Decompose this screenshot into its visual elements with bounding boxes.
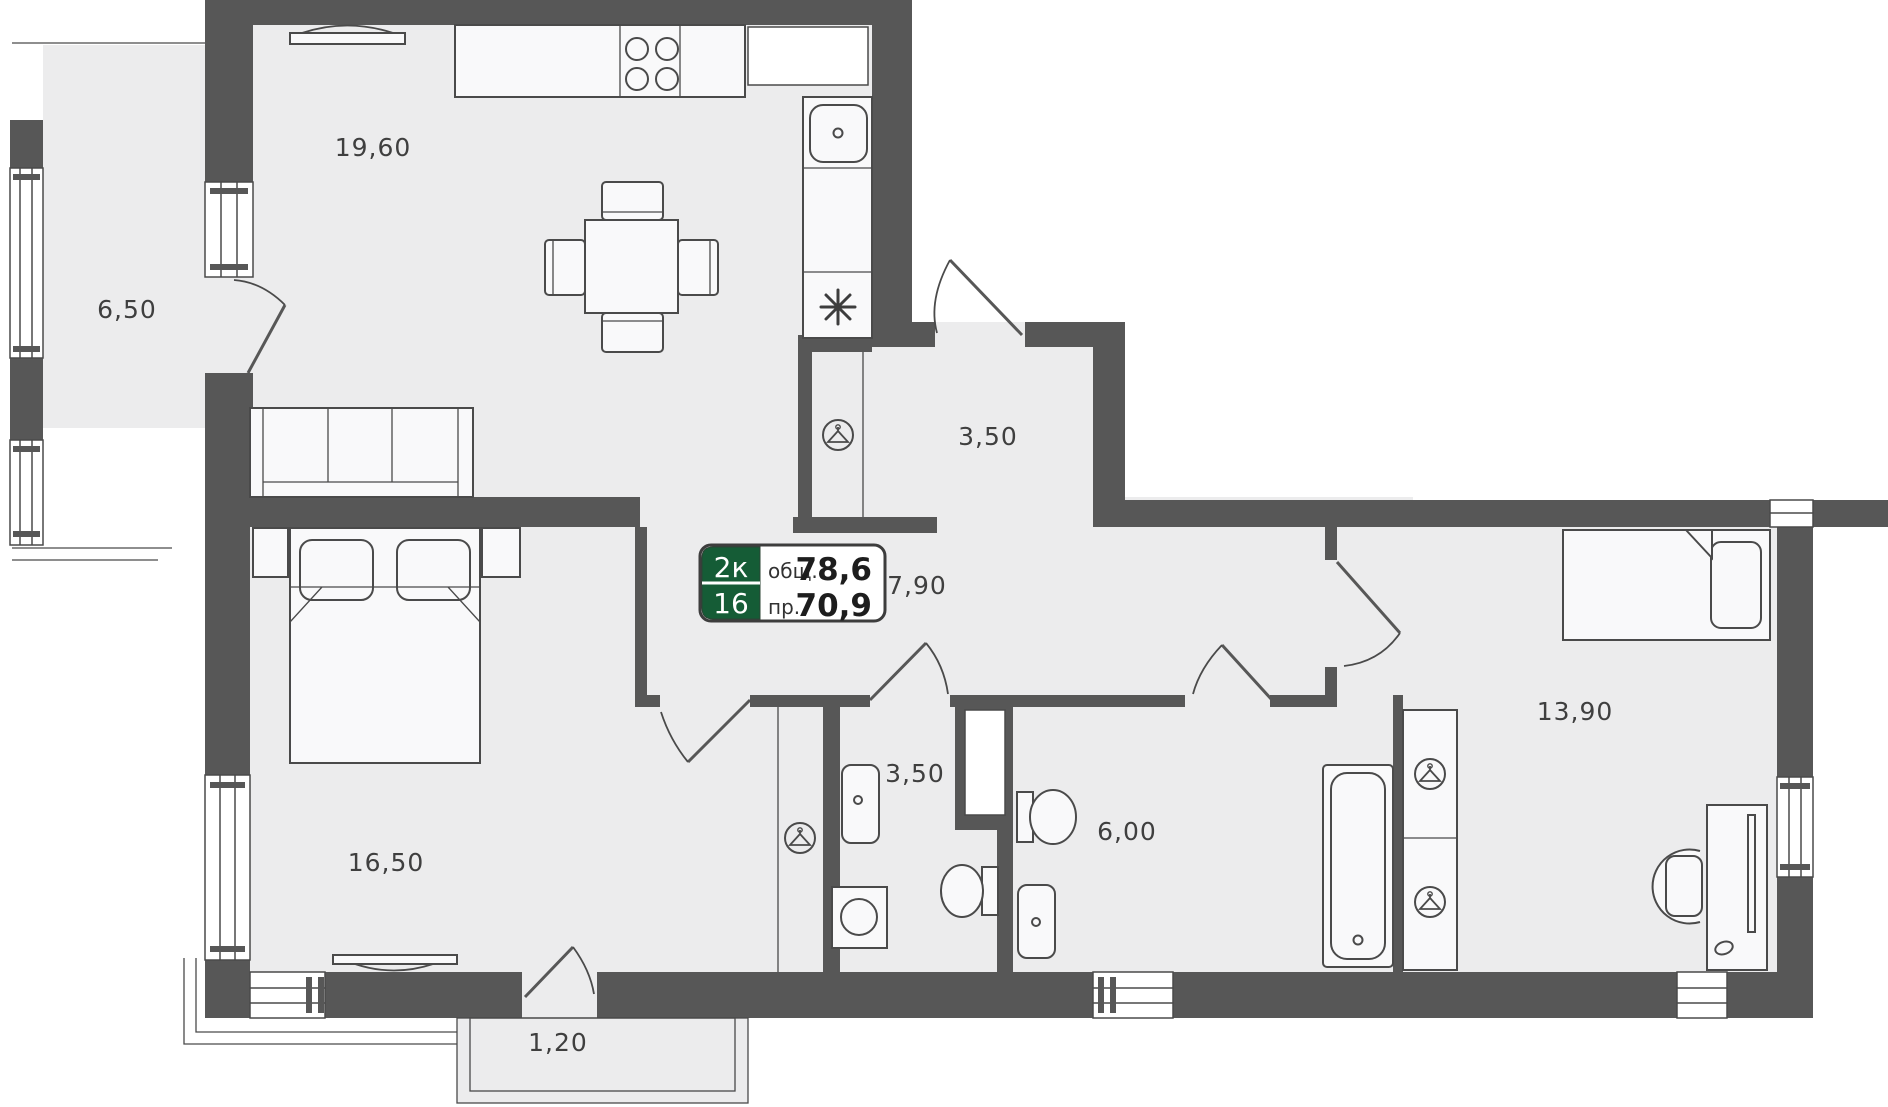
double-bed <box>290 528 480 763</box>
chair-top <box>602 182 663 220</box>
room-balcony-bottom <box>457 1018 748 1103</box>
single-bed <box>1563 530 1770 640</box>
window-bedroom-left-bottom <box>250 972 325 1018</box>
desk <box>1707 805 1767 970</box>
floorplan-drawing: 19,60 6,50 3,50 7,90 13,90 16,50 3,50 6,… <box>0 0 1888 1107</box>
window-bedroom-left <box>205 775 250 960</box>
window-right-wall <box>1777 777 1813 877</box>
label-entry-hall: 3,50 <box>958 422 1018 451</box>
badge-type: 2к <box>714 551 749 584</box>
pillow <box>397 540 470 600</box>
monitor-icon <box>1748 815 1755 932</box>
kitchen-top-niche <box>748 27 868 85</box>
badge-living-value: 70,9 <box>796 588 873 624</box>
window-bottom-middle <box>1093 972 1173 1018</box>
floorplan: 19,60 6,50 3,50 7,90 13,90 16,50 3,50 6,… <box>0 0 1888 1107</box>
room-balcony-left <box>43 45 205 428</box>
freezer-snowflake-icon <box>821 290 855 324</box>
label-bedroom-left: 16,50 <box>348 848 425 877</box>
sink-icon <box>842 765 879 843</box>
badge-floor: 16 <box>713 587 749 620</box>
chair-bottom <box>602 313 663 352</box>
chair-left <box>545 240 585 295</box>
bathtub-icon <box>1323 765 1393 967</box>
label-bathroom-large: 6,00 <box>1097 817 1157 846</box>
nightstand-right <box>482 528 520 577</box>
chair-right <box>678 240 718 295</box>
sink-icon <box>810 105 867 162</box>
window-top-right <box>1770 500 1813 527</box>
label-balcony-bottom: 1,20 <box>528 1028 588 1057</box>
sink-icon <box>1018 885 1055 958</box>
toilet-icon <box>941 865 998 917</box>
window-bottom-right <box>1677 972 1727 1018</box>
label-bathroom-small: 3,50 <box>885 759 945 788</box>
label-bedroom-right: 13,90 <box>1537 697 1614 726</box>
kitchen-counter <box>455 25 745 97</box>
window-balcony-left-upper <box>10 168 43 358</box>
dining-table <box>585 220 678 313</box>
label-kitchen-living: 19,60 <box>335 133 412 162</box>
label-corridor: 7,90 <box>887 571 947 600</box>
wardrobe <box>1403 710 1457 970</box>
window-balcony-kitchen <box>205 182 253 277</box>
sofa <box>250 408 473 497</box>
label-balcony-left: 6,50 <box>97 295 157 324</box>
kitchen-sink-column <box>803 97 872 338</box>
vent-shaft <box>965 710 1005 815</box>
toilet-icon <box>1017 790 1076 844</box>
pillow <box>300 540 373 600</box>
pillow <box>1711 542 1761 628</box>
washing-machine-icon <box>832 887 887 948</box>
nightstand-left <box>253 528 288 577</box>
badge-total-value: 78,6 <box>796 552 873 588</box>
window-balcony-left-lower <box>10 440 43 545</box>
unit-badge: 2к 16 общ. 78,6 пр. 70,9 <box>700 545 885 624</box>
